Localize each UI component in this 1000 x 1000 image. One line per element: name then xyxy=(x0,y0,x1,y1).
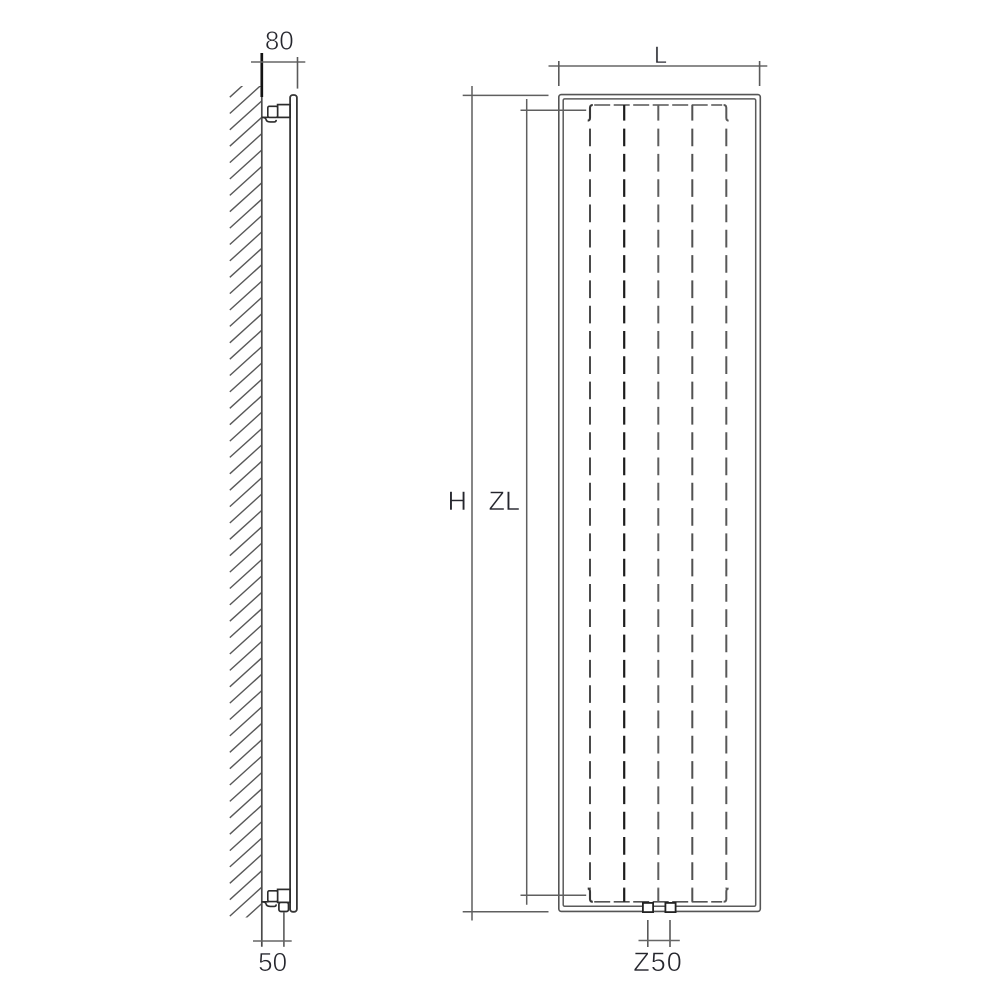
svg-text:H: H xyxy=(448,486,468,516)
svg-text:Z50: Z50 xyxy=(633,947,683,977)
svg-text:80: 80 xyxy=(265,26,294,56)
svg-text:L: L xyxy=(654,42,667,69)
svg-text:ZL: ZL xyxy=(488,486,520,516)
svg-text:50: 50 xyxy=(258,947,287,977)
